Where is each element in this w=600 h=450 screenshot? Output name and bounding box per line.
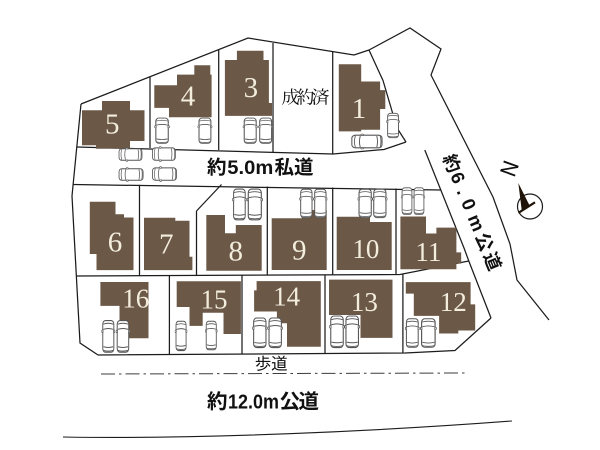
svg-text:12.0m: 12.0m <box>228 391 279 414</box>
svg-text:5.0m: 5.0m <box>227 157 273 179</box>
svg-text:16: 16 <box>122 284 149 314</box>
svg-text:9: 9 <box>292 235 307 267</box>
svg-text:12: 12 <box>440 287 467 317</box>
svg-text:4: 4 <box>181 81 196 113</box>
svg-text:1: 1 <box>352 93 367 125</box>
svg-text:15: 15 <box>201 285 228 315</box>
svg-text:8: 8 <box>229 236 244 268</box>
svg-text:13: 13 <box>351 287 378 317</box>
svg-text:6: 6 <box>108 227 123 259</box>
svg-text:3: 3 <box>244 72 259 104</box>
svg-text:11: 11 <box>415 237 441 267</box>
svg-text:5: 5 <box>105 109 120 141</box>
svg-text:7: 7 <box>159 229 174 261</box>
svg-text:14: 14 <box>273 282 301 312</box>
svg-text:10: 10 <box>352 234 379 264</box>
